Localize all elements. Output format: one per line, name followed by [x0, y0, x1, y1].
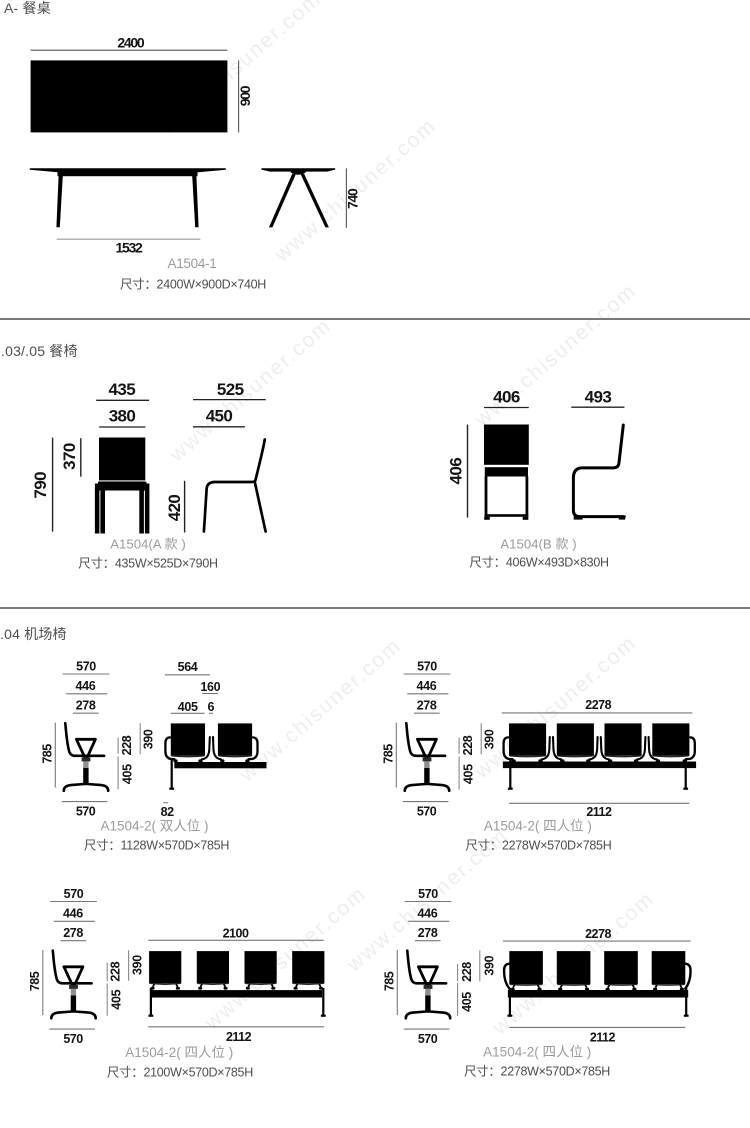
svg-text:228: 228 [461, 735, 475, 755]
svg-text:390: 390 [131, 955, 145, 975]
svg-text:2112: 2112 [590, 1031, 616, 1045]
svg-text:493: 493 [585, 388, 612, 407]
svg-text:1532: 1532 [116, 240, 143, 256]
svg-text:82: 82 [161, 805, 175, 819]
svg-text:A1504(B 款 ): A1504(B 款 ) [500, 537, 576, 552]
svg-text:A1504-2( 四人位 ): A1504-2( 四人位 ) [125, 1045, 233, 1060]
svg-text:790: 790 [31, 472, 50, 499]
svg-text:尺寸：2400W×900D×740H: 尺寸：2400W×900D×740H [120, 278, 266, 292]
svg-text:900: 900 [237, 85, 253, 106]
svg-text:380: 380 [109, 407, 136, 426]
svg-text:435: 435 [109, 380, 136, 399]
svg-text:390: 390 [483, 729, 497, 749]
svg-text:405: 405 [110, 989, 124, 1009]
svg-text:405: 405 [460, 992, 474, 1012]
svg-text:尺寸：435W×525D×790H: 尺寸：435W×525D×790H [78, 557, 218, 571]
svg-text:2100: 2100 [223, 927, 249, 941]
svg-text:尺寸：2278W×570D×785H: 尺寸：2278W×570D×785H [465, 839, 611, 853]
svg-text:160: 160 [200, 680, 220, 694]
svg-text:2112: 2112 [226, 1030, 252, 1044]
svg-text:370: 370 [60, 443, 79, 470]
svg-text:740: 740 [345, 188, 361, 209]
svg-text:A1504-1: A1504-1 [168, 256, 217, 271]
svg-text:6: 6 [207, 700, 214, 714]
svg-text:尺寸：1128W×570D×785H: 尺寸：1128W×570D×785H [84, 839, 229, 853]
svg-text:405: 405 [462, 764, 476, 784]
svg-text:450: 450 [206, 407, 233, 426]
svg-text:尺寸：2100W×570D×785H: 尺寸：2100W×570D×785H [107, 1066, 253, 1080]
svg-text:390: 390 [482, 955, 496, 975]
svg-text:525: 525 [217, 380, 244, 399]
svg-text:420: 420 [165, 495, 184, 522]
svg-text:A1504-2( 双人位 ): A1504-2( 双人位 ) [100, 819, 208, 834]
svg-text:390: 390 [142, 729, 156, 749]
svg-text:.04 机场椅: .04 机场椅 [0, 626, 67, 642]
svg-text:2112: 2112 [586, 805, 612, 819]
svg-text:405: 405 [178, 700, 198, 714]
svg-text:尺寸：2278W×570D×785H: 尺寸：2278W×570D×785H [464, 1065, 610, 1079]
svg-text:A1504(A 款 ): A1504(A 款 ) [110, 537, 186, 552]
svg-text:564: 564 [178, 660, 198, 674]
svg-text:A1504-2( 四人位 ): A1504-2( 四人位 ) [484, 819, 592, 834]
svg-text:A- 餐桌: A- 餐桌 [4, 0, 51, 16]
svg-text:406: 406 [493, 388, 520, 407]
svg-text:2400: 2400 [117, 35, 144, 51]
svg-text:405: 405 [121, 764, 135, 784]
svg-text:228: 228 [109, 961, 123, 981]
svg-text:2278: 2278 [585, 927, 611, 941]
svg-text:228: 228 [460, 962, 474, 982]
svg-text:.03/.05 餐椅: .03/.05 餐椅 [1, 343, 78, 359]
svg-text:尺寸：406W×493D×830H: 尺寸：406W×493D×830H [469, 556, 609, 570]
svg-text:2278: 2278 [585, 698, 611, 712]
svg-text:A1504-2( 四人位 ): A1504-2( 四人位 ) [483, 1045, 591, 1060]
svg-text:228: 228 [120, 735, 134, 755]
svg-text:406: 406 [447, 458, 466, 485]
